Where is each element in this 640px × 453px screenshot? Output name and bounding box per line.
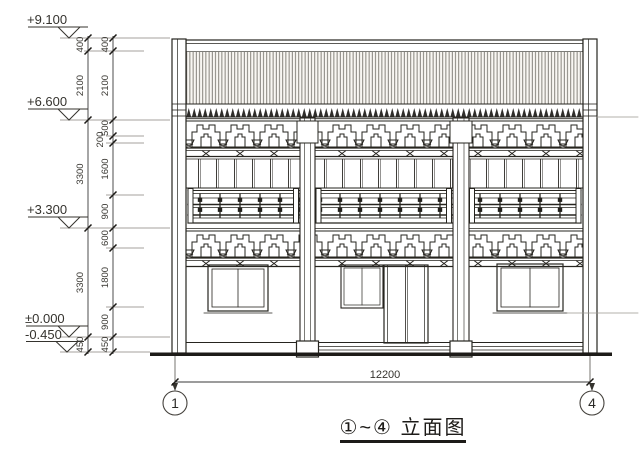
svg-text:+3.300: +3.300 [27,202,67,217]
dim-label: 400 [100,37,111,53]
svg-text:-0.450: -0.450 [25,327,62,342]
dim-label: 900 [100,204,111,220]
dimension-labels-detail: 400 2100 500 200 1600 900 600 1800 900 4… [95,37,111,353]
window-left [204,265,272,313]
dim-label: 900 [100,314,111,330]
elevation-drawing: 400 2100 3300 3300 450 400 2100 500 200 … [0,0,640,453]
dim-label: 2100 [100,75,111,96]
dimension-system-left: 400 2100 3300 3300 450 400 2100 500 200 … [60,35,170,356]
gable-right [583,39,597,353]
svg-text:+9.100: +9.100 [27,12,67,27]
column-right [450,118,472,357]
roof-tile-hatch [186,52,583,104]
elevation-marker-3300: +3.300 [27,202,88,228]
drawing-title: ①~④ 立面图 [339,416,466,443]
drawing-title-text: ①~④ 立面图 [339,416,466,439]
grid-arrow-right [589,383,595,391]
plinth-steps [186,343,583,351]
window-right [493,264,567,313]
ground-line [150,353,612,357]
eave-tile-ends [186,104,583,117]
drawing-page: 400 2100 3300 3300 450 400 2100 500 200 … [0,0,640,453]
gable-left [172,39,186,353]
svg-text:4: 4 [588,395,596,411]
bracket-frieze-upper [186,119,583,157]
dimension-labels-overall: 400 2100 3300 3300 450 [75,37,86,353]
grid-bubble-1: 1 [163,391,187,415]
dim-label: 2100 [75,75,86,96]
total-width-label: 12200 [370,369,401,381]
grid-bubble-4: 4 [580,391,604,415]
dim-label: 450 [75,337,86,353]
svg-text:1: 1 [171,395,179,411]
dim-label: 3300 [75,272,86,293]
dim-label: 600 [100,230,111,246]
dim-label: 1600 [100,158,111,179]
dim-label: 3300 [75,163,86,184]
dim-label: 450 [100,337,111,353]
svg-text:+6.600: +6.600 [27,94,67,109]
dim-label: 400 [75,37,86,53]
ground-floor [204,264,567,343]
roof-ridge-band [186,40,583,52]
window-center [341,265,383,308]
dimension-system-bottom: 12200 1 4 [163,356,604,415]
second-floor-window-band [186,159,583,188]
title-underline [340,440,466,443]
svg-text:±0.000: ±0.000 [25,311,65,326]
column-left [297,118,319,357]
elevation-marker-6600: +6.600 [27,94,88,120]
elevation-marker-9100: +9.100 [27,12,88,38]
dim-label: 1800 [100,267,111,288]
entrance-door [384,265,428,343]
dim-label: 200 [95,132,106,148]
balustrade [188,189,581,224]
building-facade [150,39,638,357]
bracket-frieze-lower [186,229,583,267]
